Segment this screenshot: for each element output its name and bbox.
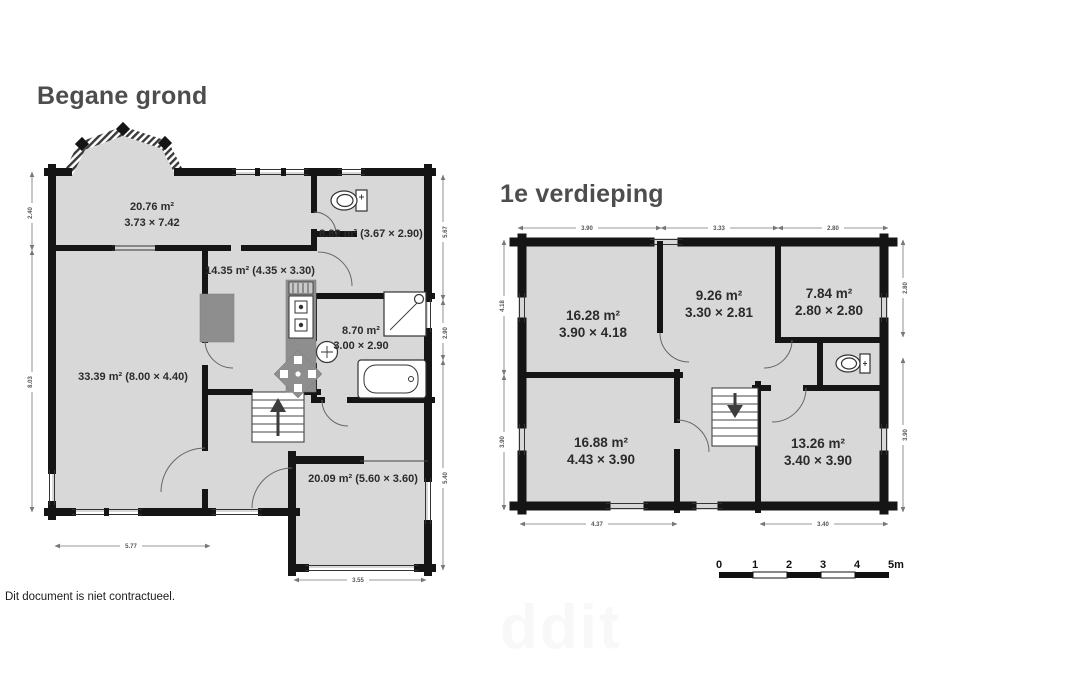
- furniture-block: [200, 294, 234, 342]
- gf-shower-icon: [384, 292, 426, 336]
- dim-label: 5.77: [125, 544, 137, 550]
- floorplan-page: Begane grond 1e verdieping ddit Dit docu…: [0, 0, 1080, 680]
- room-label: 7.84 m²: [806, 286, 853, 301]
- dim-label: 3.55: [352, 578, 364, 584]
- dim-label: 3.33: [713, 226, 725, 232]
- dim-label: 2.90: [443, 327, 449, 339]
- dim-label: 5.67: [443, 226, 449, 238]
- scale-bar-segments: [719, 572, 889, 578]
- room-label: 3.00 × 2.90: [333, 340, 388, 352]
- dim-label: 4.37: [591, 522, 603, 528]
- dim-label: 3.90: [581, 226, 593, 232]
- floorplan-canvas: 20.76 m² 3.73 × 7.42 8.82 m² (3.67 × 2.9…: [0, 0, 1080, 680]
- gf-toilet-icon: [331, 190, 367, 211]
- room-label: 16.88 m²: [574, 435, 629, 450]
- scale-tick-label: 1: [752, 559, 758, 571]
- room-label: 20.76 m²: [130, 201, 174, 213]
- room-label: 9.26 m²: [696, 288, 743, 303]
- first-floor-plan: 16.28 m² 3.90 × 4.18 9.26 m² 3.30 × 2.81…: [497, 223, 909, 528]
- scale-tick-label: 5m: [888, 559, 904, 571]
- scale-tick-label: 3: [820, 559, 826, 571]
- stove-icon: [289, 282, 313, 338]
- dim-label: 2.80: [827, 226, 839, 232]
- ff-stairs: [712, 388, 758, 446]
- ground-floor-plan: 20.76 m² 3.73 × 7.42 8.82 m² (3.67 × 2.9…: [25, 122, 449, 584]
- dim-label: 3.90: [500, 436, 506, 448]
- room-label: 3.30 × 2.81: [685, 305, 753, 320]
- dim-label: 2.80: [903, 282, 909, 294]
- scale-bar: 0 1 2 3 4 5m: [716, 559, 904, 578]
- dim-label: 3.40: [817, 522, 829, 528]
- scale-tick-label: 2: [786, 559, 792, 571]
- room-label: 14.35 m² (4.35 × 3.30): [205, 265, 315, 277]
- gf-bathtub-icon: [358, 360, 426, 398]
- room-label: 3.40 × 3.90: [784, 453, 852, 468]
- gf-stairs: [252, 392, 304, 442]
- dim-label: 2.40: [28, 207, 34, 219]
- dim-label: 5.40: [443, 472, 449, 484]
- dim-label: 8.03: [28, 376, 34, 388]
- room-label: 2.80 × 2.80: [795, 303, 863, 318]
- dim-label: 3.90: [903, 429, 909, 441]
- room-label: 3.90 × 4.18: [559, 325, 627, 340]
- room-label: 3.73 × 7.42: [124, 217, 179, 229]
- room-label: 20.09 m² (5.60 × 3.60): [308, 473, 418, 485]
- room-label: 16.28 m²: [566, 308, 621, 323]
- scale-tick-label: 4: [854, 559, 861, 571]
- dim-label: 4.18: [500, 300, 506, 312]
- ff-toilet-icon: [836, 354, 870, 373]
- room-label: 8.70 m²: [342, 325, 380, 337]
- room-label: 4.43 × 3.90: [567, 452, 635, 467]
- room-label: 8.82 m² (3.67 × 2.90): [319, 228, 423, 240]
- room-label: 33.39 m² (8.00 × 4.40): [78, 371, 188, 383]
- scale-tick-label: 0: [716, 559, 722, 571]
- room-label: 13.26 m²: [791, 436, 846, 451]
